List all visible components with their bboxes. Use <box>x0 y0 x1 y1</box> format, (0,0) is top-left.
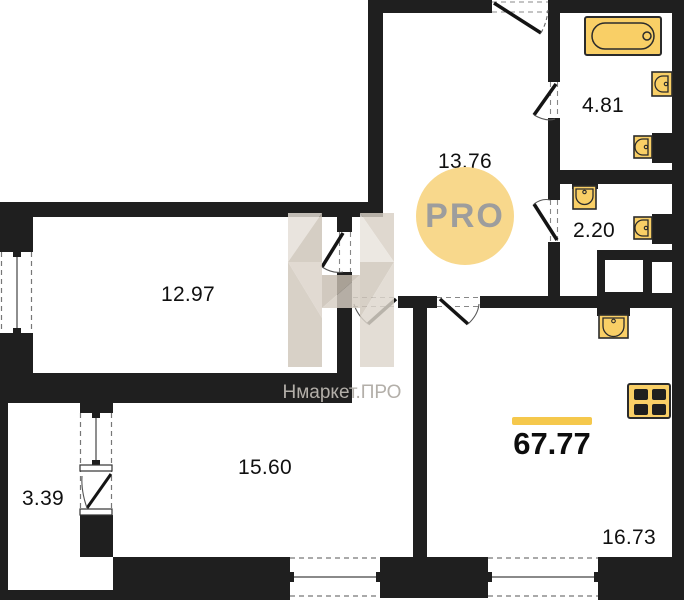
window-living-bottom-right <box>485 558 601 596</box>
total-area-underline <box>512 417 592 425</box>
sink-icon <box>599 315 628 338</box>
room-label-bedroom: 12.97 <box>138 283 238 307</box>
room-label-living: 16.73 <box>579 526 679 550</box>
room-label-balcony: 3.39 <box>0 487 93 511</box>
living-door-swing <box>437 298 480 325</box>
sink-icon <box>634 136 652 158</box>
window-bedroom-left <box>2 252 32 333</box>
pro-watermark-text: PRO <box>425 197 505 236</box>
pro-watermark-badge: PRO <box>416 167 514 265</box>
bedroom-door-swing <box>322 232 351 272</box>
room-label-bedroom2: 15.60 <box>215 456 315 480</box>
vent-shaft <box>597 250 684 308</box>
window-living-bottom-left <box>287 558 383 596</box>
room-label-bathroom: 4.81 <box>553 94 653 118</box>
sink-icon <box>652 72 672 96</box>
total-area-label: 67.77 <box>482 426 622 462</box>
sink-icon <box>573 186 596 209</box>
floor-plan: 12.97 13.76 4.81 2.20 15.60 3.39 16.73 6… <box>0 0 684 600</box>
room-label-wc: 2.20 <box>544 219 644 243</box>
brand-watermark-text: Нмаркет.ПРО <box>262 382 422 404</box>
stove-icon <box>628 384 670 418</box>
entry-door-swing <box>492 2 548 33</box>
floor-plan-drawing <box>0 0 684 600</box>
bathtub-icon <box>585 17 661 55</box>
